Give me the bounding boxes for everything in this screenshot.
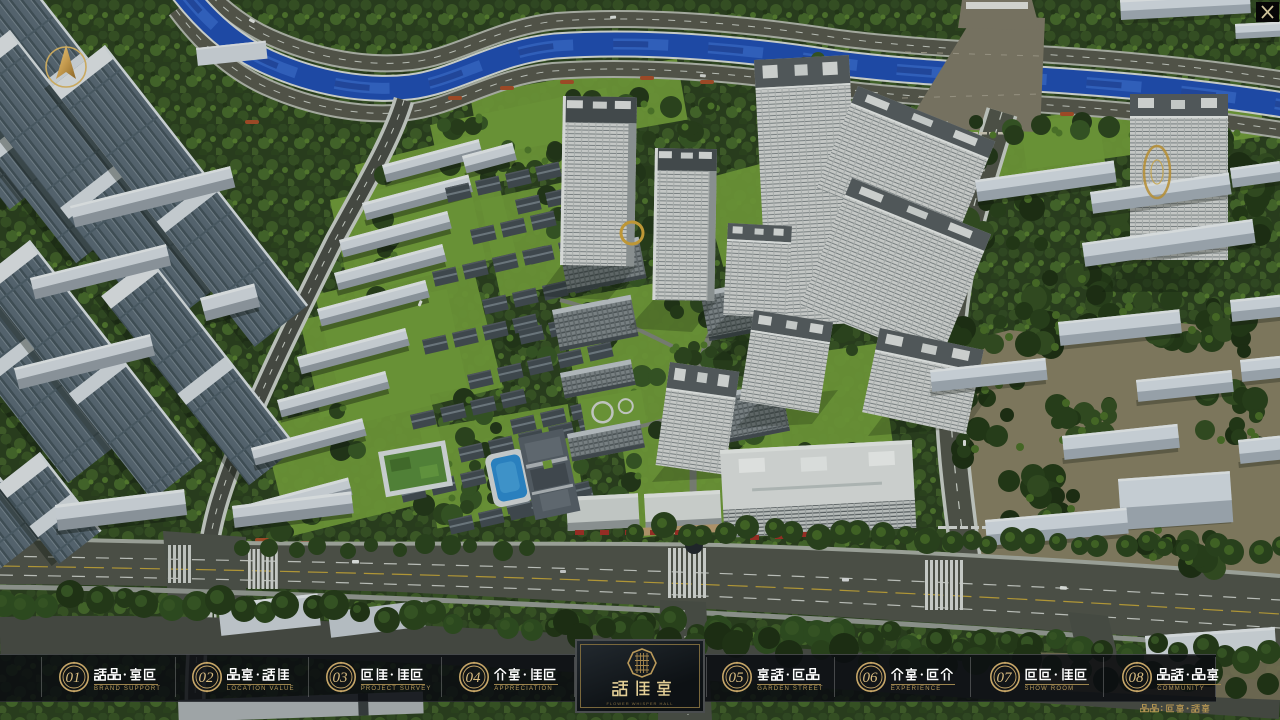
svg-text:07: 07 — [996, 670, 1013, 686]
svg-text:02: 02 — [198, 670, 214, 686]
svg-text:05: 05 — [729, 670, 745, 686]
svg-text:03: 03 — [332, 670, 347, 686]
svg-text:04: 04 — [466, 670, 482, 686]
svg-text:01: 01 — [66, 670, 81, 686]
svg-text:08: 08 — [1129, 670, 1145, 686]
svg-text:06: 06 — [862, 670, 878, 686]
